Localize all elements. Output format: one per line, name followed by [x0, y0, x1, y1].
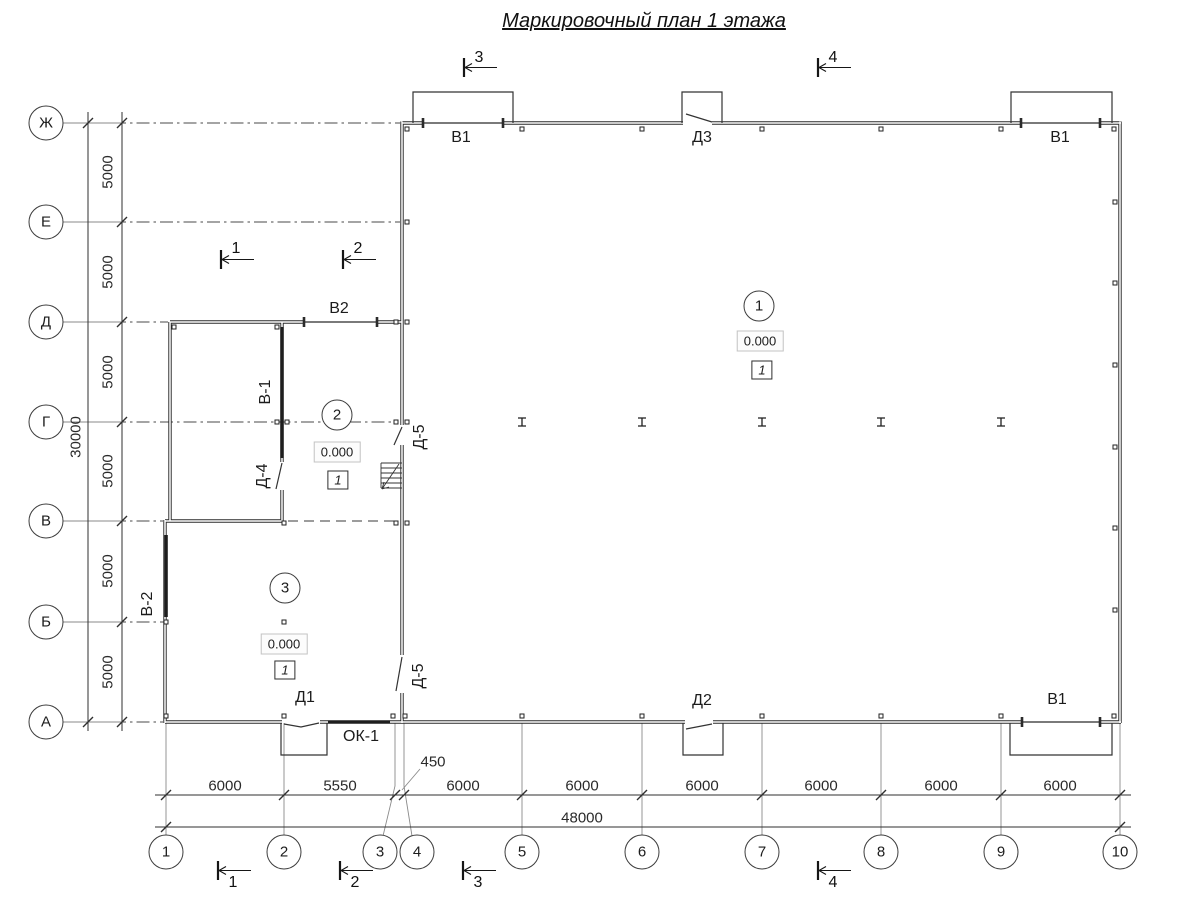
post-squares — [164, 127, 1117, 718]
axis-col-bubble-4: 4 — [400, 835, 435, 870]
axis-row-bubble-g: Г — [29, 405, 64, 440]
room-3-number-bubble: 3 — [270, 573, 301, 604]
dim-bay-5-6: 6000 — [565, 779, 598, 794]
label-door-d-4: Д-4 — [255, 463, 271, 488]
axis-col-bubble-5: 5 — [505, 835, 540, 870]
axis-col-bubble-10: 10 — [1103, 835, 1138, 870]
room-2-elevation-badge: 0.000 — [314, 442, 361, 463]
axis-row-bubble-a: А — [29, 705, 64, 740]
axis-col-label: 5 — [518, 844, 526, 861]
dimension-ticks — [83, 118, 1125, 832]
dim-horizontal-total: 48000 — [561, 811, 603, 826]
axis-col-bubble-7: 7 — [745, 835, 780, 870]
label-door-d1: Д1 — [295, 690, 315, 706]
dim-bay-6-7: 6000 — [685, 779, 718, 794]
stairs — [381, 463, 402, 489]
section-4-top-label: 4 — [829, 50, 838, 66]
drawing-title: Маркировочный план 1 этажа — [502, 11, 786, 31]
dim-bay-7-8: 6000 — [804, 779, 837, 794]
axis-col-bubble-1: 1 — [149, 835, 184, 870]
label-door-d-5-upper: Д-5 — [412, 424, 428, 449]
dim-bay-b-a: 5000 — [101, 655, 116, 688]
section-1-bottom-label: 1 — [229, 875, 238, 891]
axis-row-bubble-d: Д — [29, 305, 64, 340]
label-gate-v1-bottom-right: В1 — [1047, 692, 1067, 708]
room-number: 1 — [755, 298, 763, 315]
axis-row-label: Г — [42, 414, 50, 431]
axis-row-bubble-b: Б — [29, 605, 64, 640]
extension-lines — [63, 123, 1120, 836]
dim-bay-9-10: 6000 — [1043, 779, 1076, 794]
axis-row-label: Е — [41, 214, 51, 231]
axis-row-label: А — [41, 714, 51, 731]
axis-col-label: 3 — [376, 844, 384, 861]
room-2-number-bubble: 2 — [322, 400, 353, 431]
room-2-finish-type-badge: 1 — [327, 471, 348, 490]
dimension-lines — [88, 112, 1131, 827]
dim-bay-8-9: 6000 — [924, 779, 957, 794]
axis-row-bubble-zh: Ж — [29, 106, 64, 141]
axis-col-bubble-9: 9 — [984, 835, 1019, 870]
axis-row-bubble-v: В — [29, 504, 64, 539]
axis-col-bubble-6: 6 — [625, 835, 660, 870]
room-1-elevation-badge: 0.000 — [737, 331, 784, 352]
dim-bay-1-2: 6000 — [208, 779, 241, 794]
axis-col-label: 6 — [638, 844, 646, 861]
axis-col-bubble-3: 3 — [363, 835, 398, 870]
gate-lines — [304, 118, 1100, 727]
room-1-finish-type-badge: 1 — [751, 361, 772, 380]
section-3-bottom-label: 3 — [474, 875, 483, 891]
dim-bay-3-4: 450 — [420, 755, 445, 770]
room-number: 2 — [333, 407, 341, 424]
room-1-number-bubble: 1 — [744, 291, 775, 322]
dim-vertical-total: 30000 — [69, 416, 84, 458]
label-gate-v1-top-left: В1 — [451, 130, 471, 146]
label-gate-v2: В2 — [329, 301, 349, 317]
section-marker-lines — [218, 58, 851, 880]
dim-bay-zh-e: 5000 — [101, 155, 116, 188]
axis-row-label: Ж — [39, 115, 53, 132]
label-gate-v1-top-right: В1 — [1050, 130, 1070, 146]
axis-row-label: В — [41, 513, 51, 530]
label-gate-v-1: В-1 — [258, 380, 274, 405]
section-3-top-label: 3 — [475, 50, 484, 66]
axis-col-label: 1 — [162, 844, 170, 861]
label-gate-v-2: В-2 — [140, 592, 156, 617]
label-door-d-5-lower: Д-5 — [411, 663, 427, 688]
axis-col-label: 2 — [280, 844, 288, 861]
dim-bay-4-5: 6000 — [446, 779, 479, 794]
dim-bay-e-d: 5000 — [101, 255, 116, 288]
axis-col-label: 7 — [758, 844, 766, 861]
plan-linework — [0, 0, 1200, 900]
axis-row-bubble-e: Е — [29, 205, 64, 240]
axis-row-label: Б — [41, 614, 51, 631]
axis-col-label: 9 — [997, 844, 1005, 861]
room-3-elevation-badge: 0.000 — [261, 634, 308, 655]
dim-bay-2-3: 5550 — [323, 779, 356, 794]
axis-row-label: Д — [41, 314, 51, 331]
room-number: 3 — [281, 580, 289, 597]
label-door-d3: Д3 — [692, 130, 712, 146]
dim-bay-v-b: 5000 — [101, 554, 116, 587]
dim-bay-d-g: 5000 — [101, 355, 116, 388]
floor-plan-drawing: Маркировочный план 1 этажа Ж Е Д Г В Б А… — [0, 0, 1200, 900]
column-marks — [518, 418, 1005, 426]
axis-col-label: 10 — [1112, 844, 1129, 861]
axis-col-bubble-2: 2 — [267, 835, 302, 870]
room-3-finish-type-badge: 1 — [274, 661, 295, 680]
axis-col-label: 8 — [877, 844, 885, 861]
section-2-bottom-label: 2 — [351, 875, 360, 891]
label-door-d2: Д2 — [692, 693, 712, 709]
section-2-left-label: 2 — [354, 241, 363, 257]
label-window-ok-1: ОК-1 — [343, 729, 379, 745]
section-1-left-label: 1 — [232, 241, 241, 257]
dim-bay-g-v: 5000 — [101, 454, 116, 487]
section-4-bottom-label: 4 — [829, 875, 838, 891]
axis-col-label: 4 — [413, 844, 421, 861]
axis-col-bubble-8: 8 — [864, 835, 899, 870]
